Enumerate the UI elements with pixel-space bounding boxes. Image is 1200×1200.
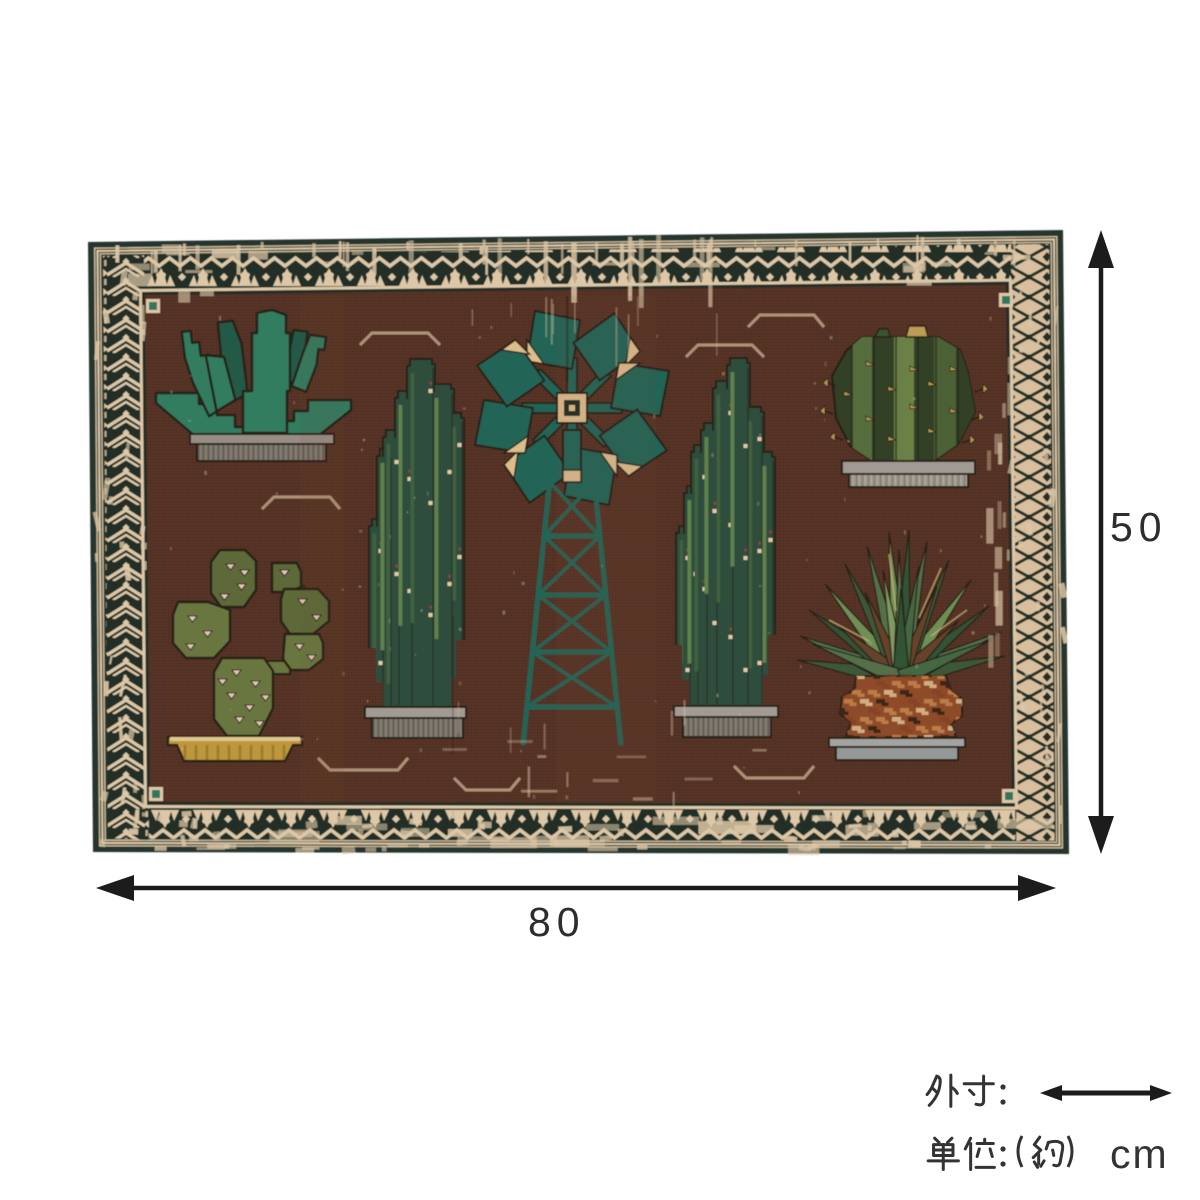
svg-text:cm: cm (1110, 1131, 1169, 1177)
svg-text:50: 50 (1110, 504, 1168, 550)
svg-text:80: 80 (528, 899, 586, 945)
